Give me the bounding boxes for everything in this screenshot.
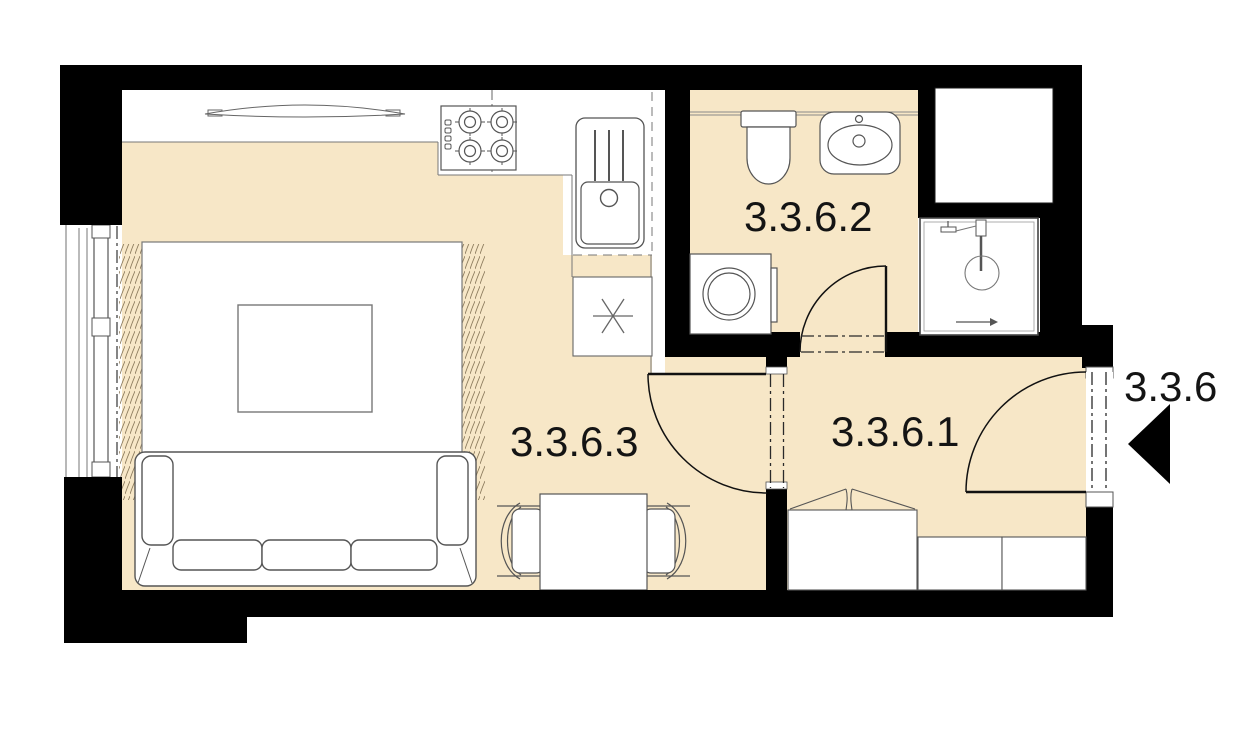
sink-faucet: [601, 190, 618, 207]
burner-inner: [465, 117, 476, 128]
window-bay: [64, 225, 122, 477]
counter-side-strip: [652, 255, 665, 373]
dining-set: [497, 494, 690, 590]
sofa-armrest-right: [437, 456, 468, 545]
window-mullion: [92, 318, 110, 336]
unit-label: 3.3.6: [1124, 363, 1217, 410]
stove-knob: [445, 128, 451, 133]
washbasin-drain: [853, 135, 865, 147]
washbasin-icon: [820, 112, 900, 174]
toilet-bowl: [747, 127, 790, 184]
wall-bathroom-south-left: [665, 332, 800, 357]
chair-seat: [512, 509, 544, 573]
sofa-cushion: [173, 540, 262, 570]
room-label-living-kitchen: 3.3.6.3: [510, 418, 638, 465]
wall-kitchen-bathroom: [665, 65, 690, 357]
entry-doorway-strip: [1086, 372, 1113, 492]
shower-bracket: [976, 220, 986, 236]
kitchen-sink-icon: [576, 118, 644, 248]
washing-machine-body: [690, 254, 771, 334]
cooktop-icon: [441, 106, 517, 170]
cabinet: [1002, 537, 1086, 590]
wall-entry-north: [1082, 325, 1113, 368]
shower-icon: [920, 218, 1038, 335]
refrigerator-icon: [573, 277, 652, 356]
coffee-table: [238, 305, 372, 412]
burner-inner: [465, 146, 476, 157]
burner-inner: [497, 146, 508, 157]
stove-knob: [445, 144, 451, 149]
room-label-bathroom: 3.3.6.2: [744, 193, 872, 240]
window-mullion: [92, 462, 110, 477]
cabinet: [918, 537, 1002, 590]
washbasin-tap: [856, 116, 863, 123]
sofa: [135, 452, 476, 586]
wall-bathroom-east: [918, 88, 935, 218]
washing-machine-door-edge: [771, 268, 777, 322]
wall-entry-south: [1086, 507, 1113, 617]
sofa-cushion: [262, 540, 351, 570]
floor-plan-svg: 3.3.6.3 3.3.6.2 3.3.6.1 3.3.6: [0, 0, 1258, 746]
wall-top: [60, 65, 930, 90]
sofa-armrest-left: [142, 456, 173, 545]
stove-knob: [445, 120, 451, 125]
window-frame: [94, 228, 108, 477]
wall-bottom: [247, 590, 1113, 617]
wall-left-upper: [60, 65, 122, 225]
toilet-tank: [741, 111, 796, 127]
wall-shower-east: [1040, 217, 1082, 339]
floor-living-extension: [665, 357, 766, 590]
window-mullion: [92, 225, 110, 238]
window: [64, 225, 122, 482]
sofa-cushion: [351, 540, 437, 570]
chair-seat: [643, 509, 675, 573]
dining-table: [540, 494, 647, 590]
duct-shaft: [935, 88, 1053, 203]
shower-mixer: [941, 227, 956, 232]
wardrobe-unit: [788, 510, 917, 590]
burner-inner: [497, 117, 508, 128]
stove-knob: [445, 136, 451, 141]
wall-living-hall-lower: [766, 489, 787, 590]
living-door-jamb-top: [766, 367, 787, 374]
floor-plan-page: 3.3.6.3 3.3.6.2 3.3.6.1 3.3.6: [0, 0, 1258, 746]
washing-machine-icon: [690, 254, 777, 334]
entry-door-jamb-bottom: [1086, 492, 1113, 507]
wall-left-lower: [64, 477, 122, 643]
wall-bottom-left-step: [122, 590, 247, 643]
room-label-hallway: 3.3.6.1: [831, 408, 959, 455]
